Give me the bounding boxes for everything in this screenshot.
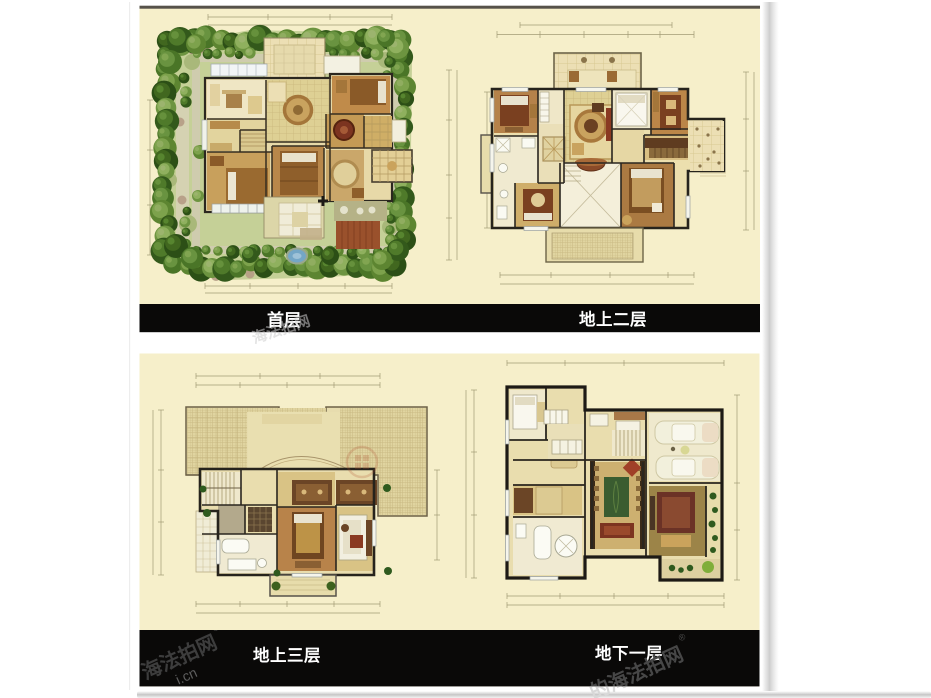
svg-text:地上三层: 地上三层 (253, 645, 321, 665)
svg-text:地上二层: 地上二层 (579, 309, 647, 329)
